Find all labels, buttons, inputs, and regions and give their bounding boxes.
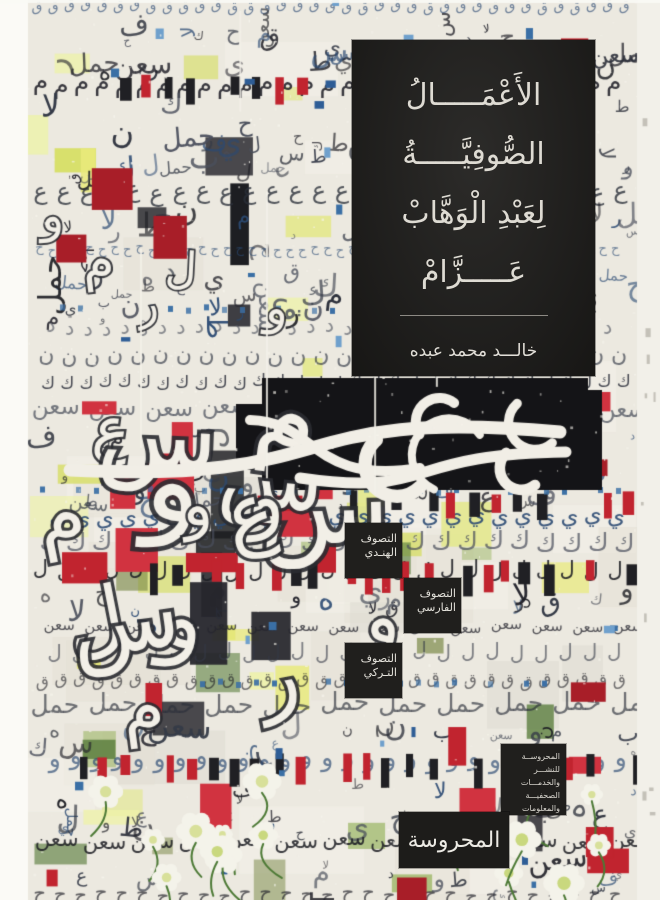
topic-box-persian-sufism: التصوف الفارسي xyxy=(404,578,461,633)
author-name: خالـــد محمد عبده xyxy=(352,341,595,361)
publisher-info-box: المحروســة للنشـــر والخدمـــات الصحفيــ… xyxy=(501,744,566,815)
book-title-line-4: عَـــــزَّامْ xyxy=(352,243,595,302)
topic-label-line: التصوف xyxy=(345,532,397,546)
book-title-line-1: الأَعْمَـــــالُ xyxy=(352,66,595,125)
topic-label-line: التصوف xyxy=(345,652,397,666)
publisher-info-line: والخدمـــات xyxy=(501,776,560,789)
topic-label-line: التـركي xyxy=(345,666,397,680)
topic-label-line: التصوف xyxy=(404,587,456,601)
publisher-logo-plate: المحروسة xyxy=(399,812,509,868)
book-title-line-3: لِعَبْدِ الْوَهَّابْ xyxy=(352,184,595,243)
topic-label-line: الهنـدي xyxy=(345,546,397,560)
publisher-logo-text: المحروسة xyxy=(408,828,501,853)
publisher-info-line: الصحفيـــة xyxy=(501,789,560,802)
book-title-line-2: الصُّوفِيَّـــــةُ xyxy=(352,125,595,184)
publisher-info-line: المحروســة xyxy=(501,750,560,763)
title-author-divider xyxy=(400,315,548,316)
topic-box-indian-sufism: التصوف الهنـدي xyxy=(345,523,402,578)
publisher-info-line: والمعلومات xyxy=(501,802,560,815)
title-box: الأَعْمَـــــالُ الصُّوفِيَّـــــةُ لِعَ… xyxy=(352,40,595,376)
book-cover: الأَعْمَـــــالُ الصُّوفِيَّـــــةُ لِعَ… xyxy=(0,0,660,900)
topic-label-line: الفارسي xyxy=(404,601,456,615)
publisher-info-line: للنشـــر xyxy=(501,763,560,776)
topic-box-turkish-sufism: التصوف التـركي xyxy=(345,643,402,698)
